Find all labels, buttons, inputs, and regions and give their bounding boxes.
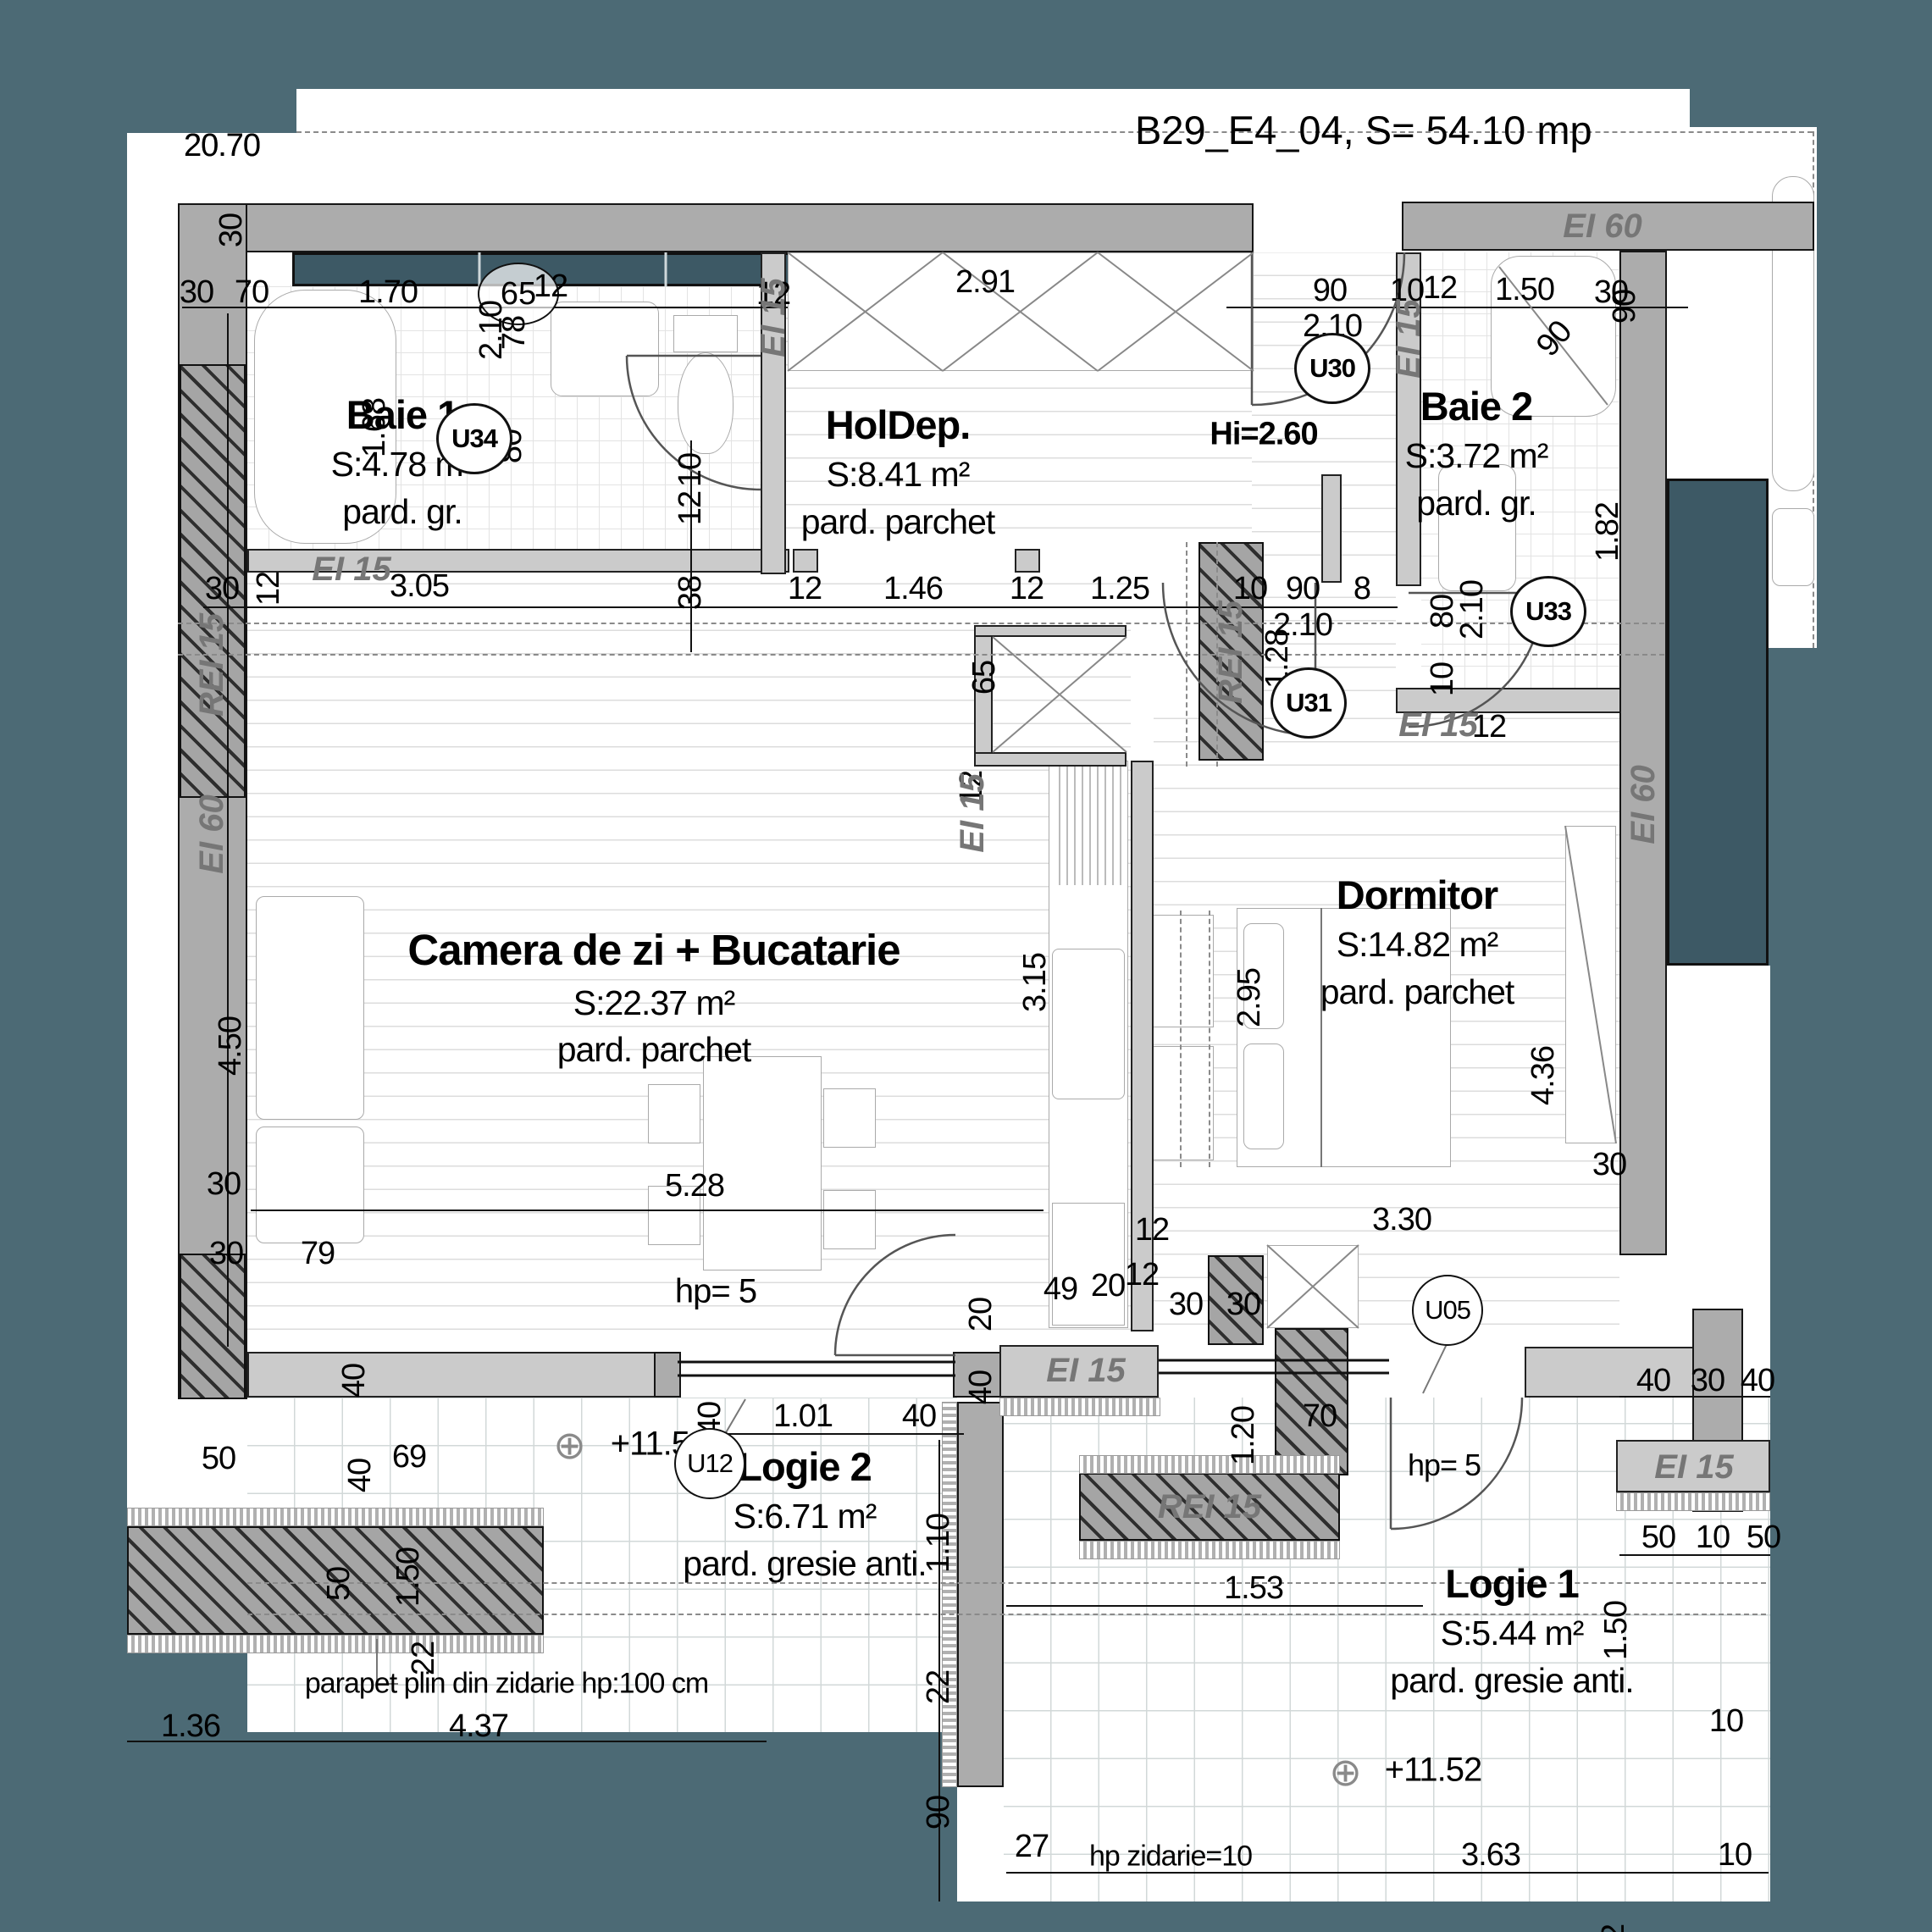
room-baie2-label: Baie 2 S:3.72 m² pard. gr. — [1354, 379, 1599, 527]
level-logie1: +11.52 — [1385, 1752, 1482, 1790]
room-holdep-floor: pard. parchet — [762, 499, 1033, 545]
insulation-6 — [127, 1508, 544, 1526]
wall-label-11: EI 15 — [1046, 1354, 1125, 1387]
dim-label-7: 90 — [1313, 274, 1347, 307]
dim-label-76: 40 — [1741, 1365, 1774, 1397]
axis-dashed-2 — [178, 654, 1664, 656]
wall-top-left — [246, 203, 1254, 252]
dim-label-55: 49 — [1044, 1273, 1077, 1305]
axis-dashed-v3 — [1180, 911, 1182, 1167]
dim-label-84: 69 — [392, 1441, 426, 1473]
dim-label-22: 30 — [205, 573, 239, 605]
closet-holdep — [788, 252, 1254, 371]
room-dormitor-name: Dormitor — [1252, 868, 1582, 922]
room-logie1-floor: pard. gresie anti. — [1347, 1658, 1677, 1704]
room-living-floor: pard. parchet — [374, 1027, 933, 1073]
dim-label-49: 4.36 — [1527, 1046, 1559, 1105]
room-holdep-label: HolDep. S:8.41 m² pard. parchet — [762, 398, 1033, 545]
dim-label-43: 30 — [207, 1168, 241, 1200]
shaft-wall-bottom — [974, 752, 1127, 767]
dim-label-85: 50 — [323, 1567, 355, 1601]
dim-label-30: 90 — [1286, 573, 1320, 605]
dim-label-80: 1.50 — [1600, 1601, 1632, 1660]
wall-stub-1 — [793, 549, 818, 573]
exterior-void-right — [1667, 479, 1769, 966]
room-logie2-area: S:6.71 m² — [652, 1493, 957, 1540]
dim-label-13: 30 — [215, 213, 247, 247]
chair-4 — [823, 1190, 876, 1249]
wall-label-2: EI 60 — [1626, 765, 1660, 844]
dim-label-42: 4.50 — [214, 1016, 246, 1076]
nightstand-1 — [1152, 915, 1214, 1027]
door-tag-U34: U34 — [436, 403, 512, 474]
dim-label-27: 12 — [1010, 573, 1044, 605]
room-dormitor-area: S:14.82 m² — [1252, 922, 1582, 968]
plan-sheet-neighbor-right — [1667, 966, 1770, 1309]
wall-logie-divider — [957, 1402, 1004, 1787]
room-baie2-floor: pard. gr. — [1354, 480, 1599, 527]
dim-label-81: 40 — [338, 1364, 370, 1398]
dim-label-44: 30 — [209, 1237, 243, 1270]
dim-label-72: 10 — [1709, 1705, 1743, 1737]
room-logie2-floor: pard. gresie anti. — [652, 1541, 957, 1587]
wall-label-6: EI 15 — [756, 278, 790, 357]
dim-label-78: 10 — [1696, 1521, 1730, 1553]
room-dormitor-label: Dormitor S:14.82 m² pard. parchet — [1252, 868, 1582, 1016]
axis-dashed-v4 — [1209, 911, 1210, 1167]
dim-label-21: 38 — [674, 576, 706, 610]
door-tag-U31: U31 — [1270, 667, 1347, 739]
shaft-wall-top — [974, 625, 1127, 637]
door-tag-U12: U12 — [674, 1428, 745, 1499]
dim-label-59: 40 — [965, 1370, 997, 1404]
dim-label-75: 30 — [1691, 1365, 1724, 1397]
room-holdep-area: S:8.41 m² — [762, 451, 1033, 498]
pillow-2 — [1243, 1044, 1284, 1149]
wall-label-5: REI 15 — [1158, 1490, 1261, 1524]
dim-label-67: 90 — [922, 1796, 955, 1830]
room-living-area: S:22.37 m² — [374, 980, 933, 1027]
wall-living-parapet — [247, 1352, 659, 1398]
teal-corner-cut — [127, 89, 296, 133]
dim-label-69: 1.53 — [1224, 1572, 1283, 1604]
dim-label-11: 1.50 — [1495, 274, 1554, 306]
dim-label-54: 30 — [1226, 1288, 1260, 1320]
dim-label-62: 40 — [902, 1400, 936, 1432]
sofa — [256, 896, 364, 1120]
dim-label-53: 30 — [1169, 1288, 1203, 1320]
chair-2 — [823, 1088, 876, 1148]
dim-label-63: 1.20 — [1227, 1406, 1259, 1465]
dim-label-36: 10 — [1426, 662, 1459, 696]
parapet-note: parapet plin din zidarie hp:100 cm — [305, 1668, 708, 1701]
insulation-3 — [1079, 1455, 1340, 1474]
wall-label-0: EI 60 — [1563, 209, 1641, 243]
hp5-logie1: hp= 5 — [1408, 1448, 1481, 1483]
dim-label-89: 4.37 — [449, 1710, 508, 1742]
room-dormitor-floor: pard. parchet — [1252, 969, 1582, 1016]
insulation-7 — [127, 1635, 544, 1653]
dim-label-87: 22 — [407, 1641, 440, 1675]
hp5-living: hp= 5 — [675, 1273, 756, 1311]
insulation-1 — [999, 1398, 1160, 1416]
room-baie2-name: Baie 2 — [1354, 379, 1599, 433]
room-living-label: Camera de zi + Bucatarie S:22.37 m² pard… — [374, 922, 933, 1074]
room-baie1-floor: pard. gr. — [280, 489, 525, 535]
dim-label-2: 70 — [235, 276, 268, 308]
wall-label-1: EI 60 — [195, 794, 229, 873]
shaft-wall-left — [974, 625, 993, 767]
height-annotation: Hi=2.60 — [1210, 417, 1317, 453]
dim-label-20: 12 — [674, 491, 706, 525]
dim-label-68: 27 — [1015, 1830, 1049, 1863]
room-baie2-area: S:3.72 m² — [1354, 433, 1599, 479]
wall-label-3: REI 15 — [195, 613, 229, 717]
dim-label-23: 12 — [252, 572, 285, 606]
dim-label-6: 2.91 — [955, 266, 1015, 298]
wall-stub-2 — [1015, 549, 1040, 573]
door-tag-U30: U30 — [1294, 333, 1370, 404]
dim-label-19: 10 — [674, 453, 706, 487]
hp-zidarie-note: hp zidarie=10 — [1089, 1841, 1252, 1874]
dim-label-66: 22 — [922, 1670, 955, 1704]
kitchen-stove — [1052, 1203, 1125, 1326]
dim-label-16: 2.10 — [475, 301, 507, 360]
dim-label-86: 1.50 — [392, 1547, 424, 1607]
dim-label-46: 5.28 — [665, 1170, 724, 1202]
dim-label-25: 12 — [788, 573, 822, 605]
dim-label-35: 2.10 — [1456, 580, 1488, 639]
closet-dormitor — [1267, 1245, 1359, 1328]
dim-label-64: 70 — [1303, 1400, 1337, 1432]
level-marker-logie1: ⊕ — [1329, 1749, 1361, 1795]
toilet-tank-baie1 — [673, 315, 738, 352]
room-living-name: Camera de zi + Bucatarie — [374, 922, 933, 980]
dim-label-28: 1.25 — [1090, 573, 1149, 605]
dim-label-83: 40 — [344, 1459, 376, 1492]
wall-entry-stub — [1321, 474, 1342, 583]
room-holdep-name: HolDep. — [762, 398, 1033, 451]
dim-label-18: 1.68 — [358, 398, 390, 457]
wall-label-7: EI 15 — [312, 552, 390, 586]
dim-label-10: 12 — [1423, 272, 1457, 304]
wall-label-12: EI 15 — [1654, 1450, 1733, 1484]
dim-label-3: 1.70 — [358, 276, 418, 308]
dim-label-31: 8 — [1354, 573, 1370, 605]
dim-label-77: 50 — [1641, 1521, 1675, 1553]
wall-label-9: EI 15 — [955, 773, 989, 852]
dim-label-56: 20 — [1091, 1270, 1125, 1302]
dim-label-70: 3.63 — [1461, 1839, 1520, 1871]
nightstand-2 — [1152, 1046, 1214, 1160]
kitchen-sink — [1052, 949, 1125, 1099]
dim-label-39: 65 — [968, 661, 1000, 695]
plan-title: B29_E4_04, S= 54.10 mp — [1135, 107, 1592, 153]
dim-label-61: 1.01 — [773, 1400, 833, 1432]
dim-label-82: 50 — [202, 1442, 235, 1475]
axis-dashed-v1 — [1186, 542, 1187, 767]
armchair — [256, 1127, 364, 1243]
dim-label-24: 3.05 — [390, 570, 449, 602]
toilet-baie1 — [678, 352, 733, 454]
dim-label-88: 1.36 — [161, 1710, 220, 1742]
dim-label-37: 1.82 — [1592, 502, 1624, 562]
kitchen-drainer — [1053, 767, 1124, 885]
wall-window-mullion — [654, 1352, 681, 1398]
dim-label-47: 3.15 — [1019, 953, 1051, 1012]
insulation-2 — [1616, 1492, 1770, 1511]
dim-label-79: 50 — [1747, 1521, 1780, 1553]
dim-label-45: 79 — [301, 1237, 335, 1270]
dim-label-73: 22 — [1597, 1924, 1630, 1932]
dim-label-51: 3.30 — [1372, 1204, 1431, 1236]
dimline-528 — [251, 1210, 1044, 1211]
level-marker-logie2: ⊕ — [553, 1422, 585, 1468]
chair-1 — [648, 1084, 700, 1143]
floor-plan-canvas: B29_E4_04, S= 54.10 mp 20.70 Baie 1 S:4.… — [0, 0, 1932, 1932]
door-tag-U33: U33 — [1510, 576, 1586, 647]
dim-label-48: 2.95 — [1233, 968, 1265, 1027]
wall-label-4: REI 15 — [1214, 601, 1248, 704]
dim-label-1: 30 — [180, 276, 213, 308]
dim-label-50: 30 — [1592, 1149, 1626, 1181]
dim-label-58: 20 — [965, 1298, 997, 1331]
dim-label-4: 12 — [534, 270, 567, 302]
wall-label-8: EI 15 — [1392, 299, 1425, 378]
dim-label-0: 20.70 — [184, 130, 260, 162]
dim-label-71: 10 — [1718, 1839, 1752, 1871]
wall-right-ei60 — [1619, 251, 1667, 1255]
neighbor-sink — [1772, 508, 1814, 586]
dim-label-52: 12 — [1135, 1214, 1169, 1246]
dim-label-57: 12 — [1125, 1259, 1159, 1291]
insulation-4 — [1079, 1541, 1340, 1559]
dim-label-74: 40 — [1636, 1365, 1670, 1397]
door-tag-U05: U05 — [1412, 1275, 1483, 1346]
dim-label-65: 1.10 — [922, 1514, 955, 1573]
dimline-437 — [127, 1741, 767, 1742]
dim-label-26: 1.46 — [883, 573, 943, 605]
sink-baie1 — [551, 302, 659, 396]
wall-label-10: EI 15 — [1398, 708, 1477, 742]
wall-left-hatch-lower — [180, 1254, 246, 1399]
dining-table — [703, 1056, 822, 1270]
dim-label-15: 90 — [1608, 290, 1641, 324]
